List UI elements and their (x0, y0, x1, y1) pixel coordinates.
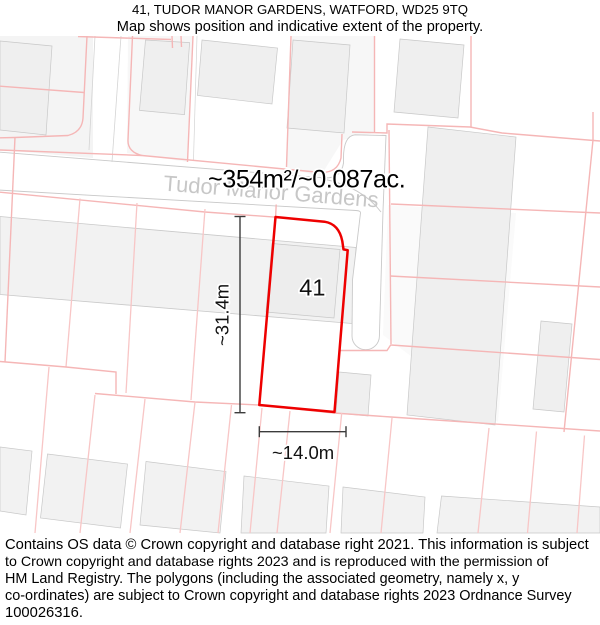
svg-text:~14.0m: ~14.0m (272, 442, 334, 463)
svg-text:~31.4m: ~31.4m (212, 284, 233, 346)
svg-text:41: 41 (299, 275, 325, 301)
svg-text:~354m²/~0.087ac.: ~354m²/~0.087ac. (208, 166, 405, 194)
